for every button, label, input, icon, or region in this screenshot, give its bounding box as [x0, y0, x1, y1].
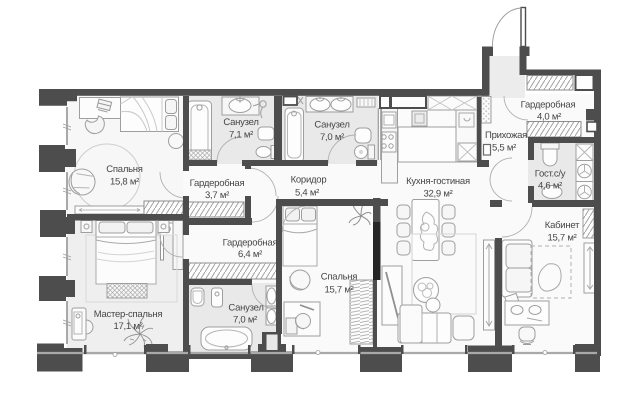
svg-text:4,0 м²: 4,0 м² — [537, 112, 561, 123]
svg-text:Санузел: Санузел — [228, 303, 263, 314]
svg-text:7,1 м²: 7,1 м² — [229, 130, 253, 141]
svg-text:Кабинет: Кабинет — [545, 220, 580, 231]
svg-text:7,0 м²: 7,0 м² — [233, 315, 257, 326]
svg-text:3,7 м²: 3,7 м² — [205, 190, 229, 201]
svg-text:Гардеробная: Гардеробная — [223, 238, 278, 249]
svg-text:17,1 м²: 17,1 м² — [113, 321, 142, 332]
svg-text:Санузел: Санузел — [314, 120, 349, 131]
svg-text:Прихожая: Прихожая — [485, 130, 527, 141]
svg-text:Коридор: Коридор — [291, 175, 327, 186]
svg-text:6,4 м²: 6,4 м² — [238, 249, 262, 260]
svg-text:4,6 м²: 4,6 м² — [538, 181, 562, 192]
svg-text:Спальня: Спальня — [106, 164, 143, 175]
svg-text:32,9 м²: 32,9 м² — [423, 189, 452, 200]
svg-text:Кухня-гостиная: Кухня-гостиная — [406, 176, 470, 187]
svg-text:15,7 м²: 15,7 м² — [547, 233, 576, 244]
svg-text:Гардеробная: Гардеробная — [190, 178, 245, 189]
svg-text:5,4 м²: 5,4 м² — [295, 188, 319, 199]
svg-text:15,7 м²: 15,7 м² — [324, 285, 353, 296]
svg-text:5,5 м²: 5,5 м² — [492, 143, 516, 154]
svg-text:15,8 м²: 15,8 м² — [110, 177, 139, 188]
svg-text:Санузел: Санузел — [223, 117, 258, 128]
svg-text:Гардеробная: Гардеробная — [521, 100, 576, 111]
svg-text:Гост.с/у: Гост.с/у — [535, 169, 566, 180]
svg-text:7,0 м²: 7,0 м² — [320, 132, 344, 143]
svg-text:Спальня: Спальня — [321, 272, 358, 283]
svg-text:Мастер-спальня: Мастер-спальня — [94, 309, 163, 320]
